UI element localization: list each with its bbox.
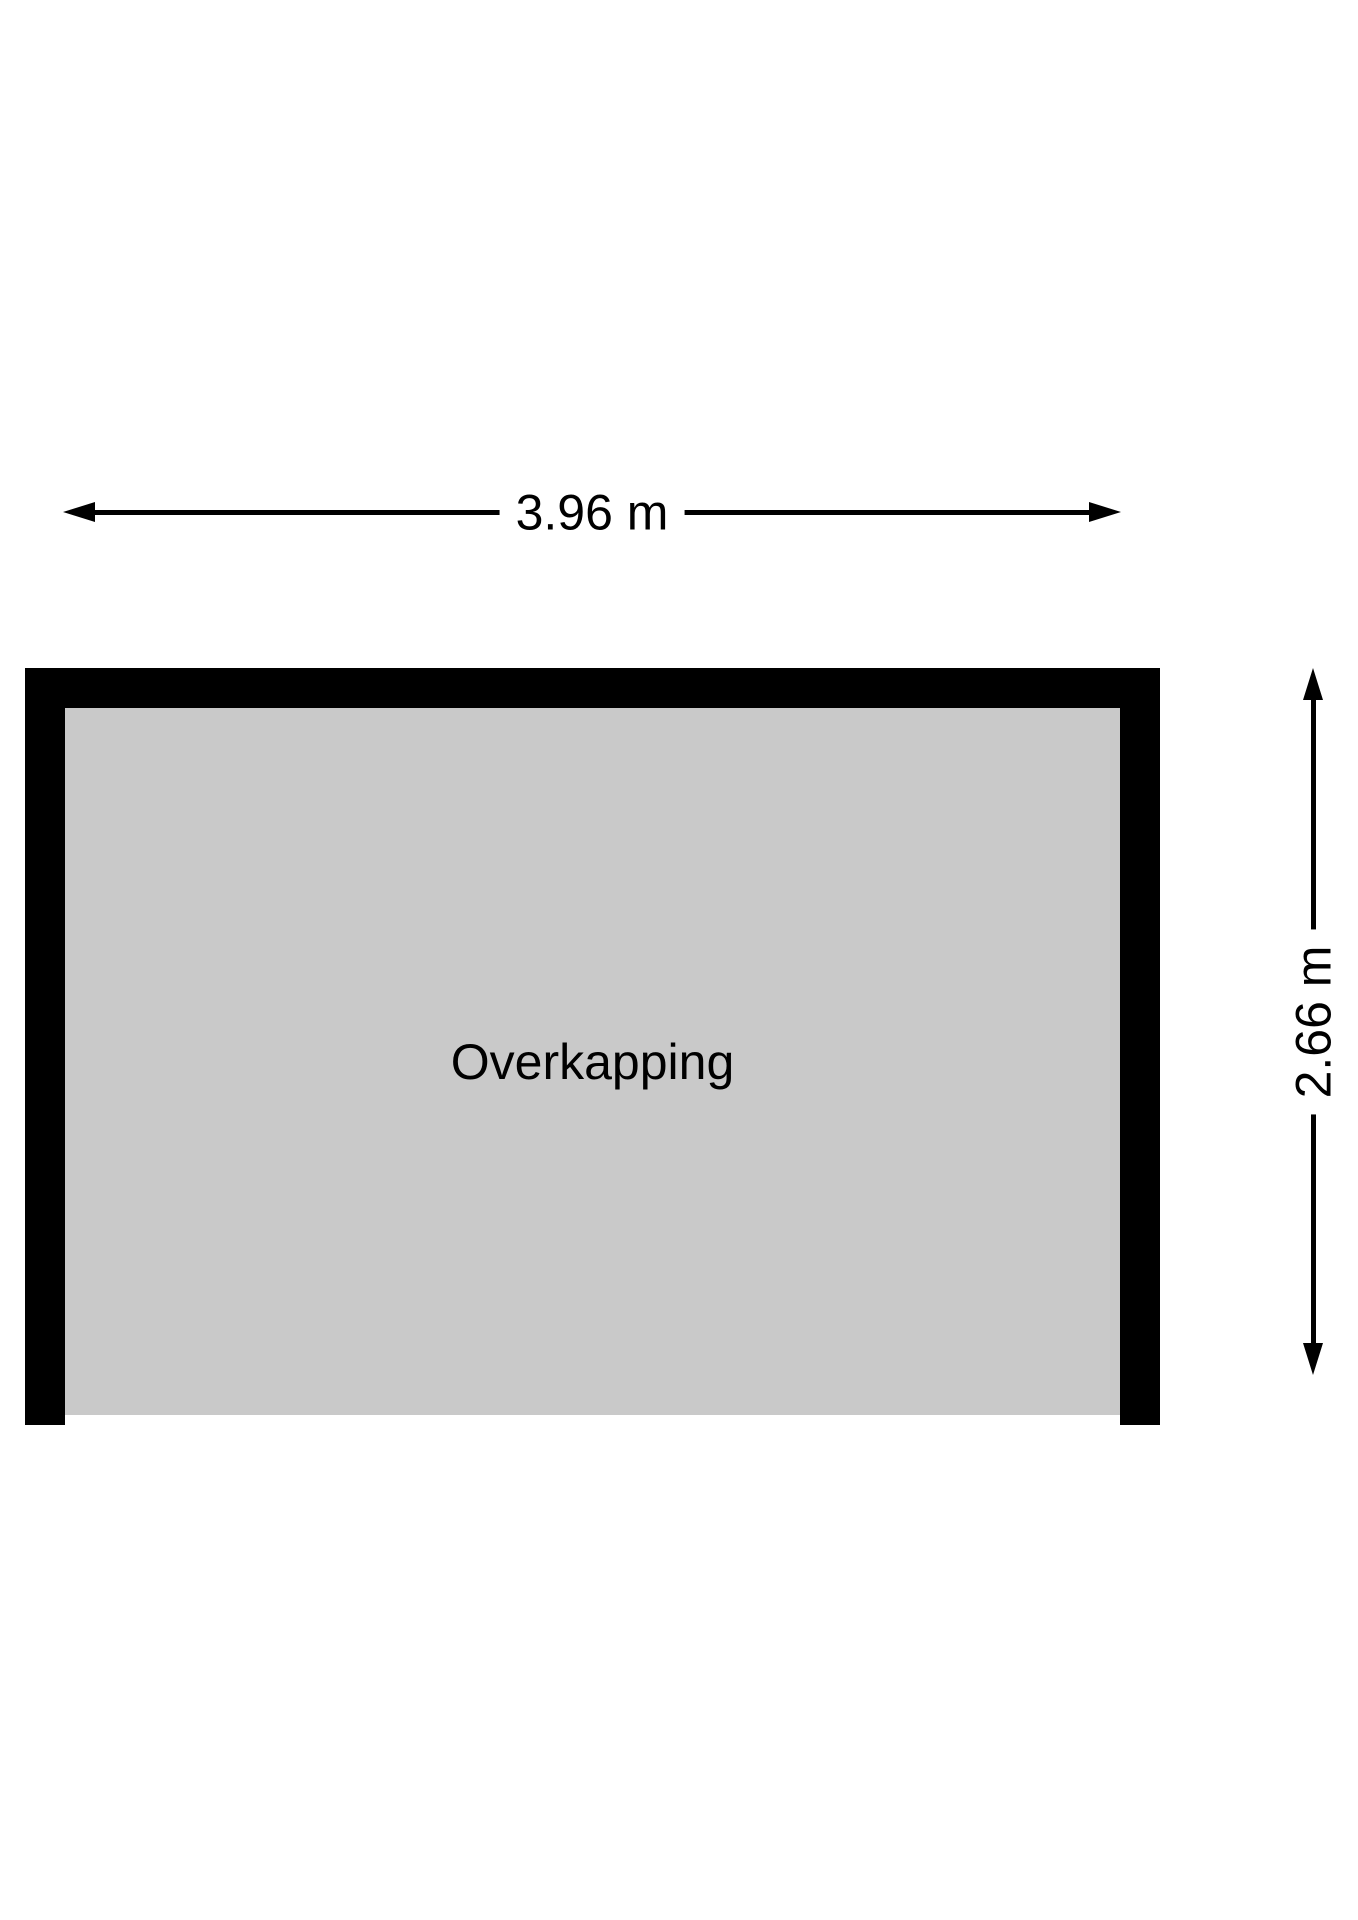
wall-right: [1120, 668, 1160, 1425]
arrow-down-icon: [1303, 1343, 1323, 1375]
height-dimension-label: 2.66 m: [1285, 929, 1343, 1114]
wall-left: [25, 668, 65, 1425]
height-dimension: 2.66 m: [1293, 668, 1334, 1375]
room-floor: Overkapping: [65, 708, 1120, 1415]
width-dimension: 3.96 m: [63, 492, 1121, 533]
arrow-right-icon: [1089, 502, 1121, 522]
floor-plan-canvas: 3.96 m Overkapping 2.66 m: [0, 0, 1358, 1920]
width-dimension-label: 3.96 m: [500, 484, 685, 542]
arrow-left-icon: [63, 502, 95, 522]
room-label: Overkapping: [451, 1037, 735, 1087]
wall-top: [25, 668, 1160, 708]
arrow-up-icon: [1303, 668, 1323, 700]
